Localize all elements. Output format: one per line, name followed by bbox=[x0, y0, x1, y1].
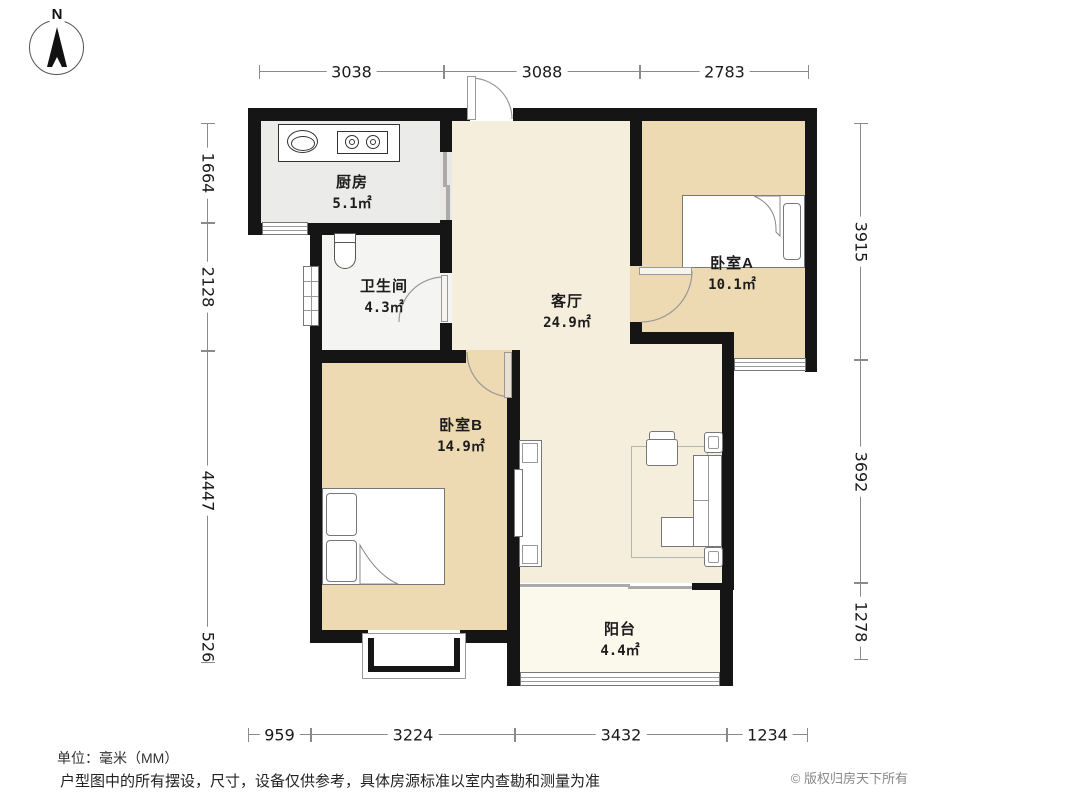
dim-left-2-value: 2128 bbox=[199, 262, 218, 313]
dim-right-2: 3692 bbox=[860, 360, 861, 583]
room-name-living: 客厅 bbox=[543, 290, 591, 311]
room-label-balcony: 阳台 4.4㎡ bbox=[600, 618, 639, 660]
balcony-slider-panel-2 bbox=[628, 586, 692, 589]
room-label-bathroom: 卫生间 4.3㎡ bbox=[360, 275, 408, 317]
dim-bottom-4-value: 1234 bbox=[742, 726, 793, 745]
disclaimer: 户型图中的所有摆设，尺寸，设备仅供参考，具体房源标准以室内查勘和测量为准 bbox=[60, 770, 600, 791]
dim-left-4-value: 526 bbox=[199, 626, 218, 667]
wall-kitchen-west bbox=[248, 108, 261, 235]
wall-bedroom-a-south bbox=[630, 332, 734, 344]
room-area-balcony: 4.4㎡ bbox=[600, 640, 639, 660]
tv-stand-shelf-bottom bbox=[522, 545, 538, 564]
sofa-back-line bbox=[708, 456, 709, 546]
wall-north bbox=[248, 108, 817, 121]
room-label-living: 客厅 24.9㎡ bbox=[543, 290, 591, 332]
stove-burner-right-center bbox=[370, 139, 376, 145]
floor-living-entry bbox=[452, 121, 630, 350]
dim-bottom-1: 959 bbox=[248, 734, 311, 735]
dim-bottom-4: 1234 bbox=[727, 734, 808, 735]
dim-left-1: 1664 bbox=[207, 123, 208, 223]
bedroom-a-pillow bbox=[783, 203, 801, 260]
dim-top-2: 3088 bbox=[444, 71, 640, 72]
dim-bottom-1-value: 959 bbox=[259, 726, 300, 745]
dim-top-2-value: 3088 bbox=[517, 63, 568, 82]
dim-bottom-3: 3432 bbox=[515, 734, 727, 735]
bathroom-window bbox=[303, 266, 319, 326]
wall-living-east bbox=[722, 344, 734, 590]
dim-left-3: 4447 bbox=[207, 351, 208, 630]
unit-note: 单位：毫米（MM） bbox=[57, 748, 178, 768]
wall-balcony-door-stub bbox=[692, 583, 722, 590]
dim-left-2: 2128 bbox=[207, 223, 208, 351]
bedroom-b-door-leaf bbox=[504, 352, 512, 398]
dim-left-4: 526 bbox=[207, 630, 208, 663]
room-name-balcony: 阳台 bbox=[600, 618, 639, 639]
stove-burner-left-center bbox=[349, 139, 355, 145]
side-table-top-lamp bbox=[708, 436, 719, 449]
bedroom-b-pillow-1 bbox=[326, 493, 357, 536]
room-label-bedroom-a: 卧室A 10.1㎡ bbox=[708, 252, 756, 294]
dim-bottom-2: 3224 bbox=[311, 734, 515, 735]
tv-stand-shelf-top bbox=[522, 443, 538, 463]
dim-left-3-value: 4447 bbox=[199, 465, 218, 516]
dim-top-3: 2783 bbox=[640, 71, 809, 72]
compass-north-label: N bbox=[50, 6, 65, 23]
kitchen-slider-panel-1 bbox=[443, 152, 447, 187]
sofa-cushion-line bbox=[694, 500, 708, 501]
room-name-bedroom-a: 卧室A bbox=[708, 252, 756, 273]
toilet-bowl bbox=[334, 242, 356, 269]
entry-door-opening bbox=[470, 108, 513, 121]
room-area-bedroom-b: 14.9㎡ bbox=[437, 436, 485, 456]
balcony-window bbox=[520, 672, 720, 686]
bedroom-a-door-leaf bbox=[639, 267, 692, 275]
balcony-slider-panel-1 bbox=[520, 584, 630, 587]
dim-right-1-value: 3915 bbox=[852, 216, 871, 267]
room-name-bathroom: 卫生间 bbox=[360, 275, 408, 296]
entry-door-leaf bbox=[467, 76, 476, 120]
kitchen-slider-panel-2 bbox=[446, 185, 450, 220]
dim-left-1-value: 1664 bbox=[199, 148, 218, 199]
dim-bottom-2-value: 3224 bbox=[388, 726, 439, 745]
room-area-bedroom-a: 10.1㎡ bbox=[708, 274, 756, 294]
room-name-kitchen: 厨房 bbox=[332, 171, 371, 192]
kitchen-sink-basin bbox=[291, 136, 315, 151]
room-area-living: 24.9㎡ bbox=[543, 312, 591, 332]
dim-right-3: 1278 bbox=[860, 583, 861, 660]
bedroom-b-pillow-2 bbox=[326, 540, 357, 582]
dim-right-1: 3915 bbox=[860, 123, 861, 360]
room-label-bedroom-b: 卧室B 14.9㎡ bbox=[437, 414, 485, 456]
compass-needle-notch bbox=[52, 57, 62, 67]
armchair-seat bbox=[646, 439, 678, 466]
dim-right-2-value: 3692 bbox=[852, 446, 871, 497]
bedroom-a-window bbox=[734, 358, 806, 371]
kitchen-window bbox=[262, 222, 308, 235]
room-area-kitchen: 5.1㎡ bbox=[332, 193, 371, 213]
room-name-bedroom-b: 卧室B bbox=[437, 414, 485, 435]
floorplan-canvas: N bbox=[0, 0, 1066, 800]
tv bbox=[514, 469, 523, 537]
room-area-bathroom: 4.3㎡ bbox=[360, 297, 408, 317]
side-table-bottom-lamp bbox=[708, 551, 719, 563]
dim-right-3-value: 1278 bbox=[852, 596, 871, 647]
wall-east bbox=[805, 108, 817, 372]
wall-balcony-east bbox=[720, 583, 733, 686]
sofa-chaise bbox=[661, 517, 694, 547]
floor-bedroom-a-nook bbox=[734, 332, 805, 358]
bathroom-door-leaf bbox=[441, 275, 448, 322]
dim-bottom-3-value: 3432 bbox=[596, 726, 647, 745]
bay-window-frame bbox=[368, 638, 460, 672]
copyright: © 版权归房天下所有 bbox=[791, 768, 908, 787]
room-label-kitchen: 厨房 5.1㎡ bbox=[332, 171, 371, 213]
dim-top-1: 3038 bbox=[259, 71, 444, 72]
dim-top-1-value: 3038 bbox=[326, 63, 377, 82]
dim-top-3-value: 2783 bbox=[699, 63, 750, 82]
